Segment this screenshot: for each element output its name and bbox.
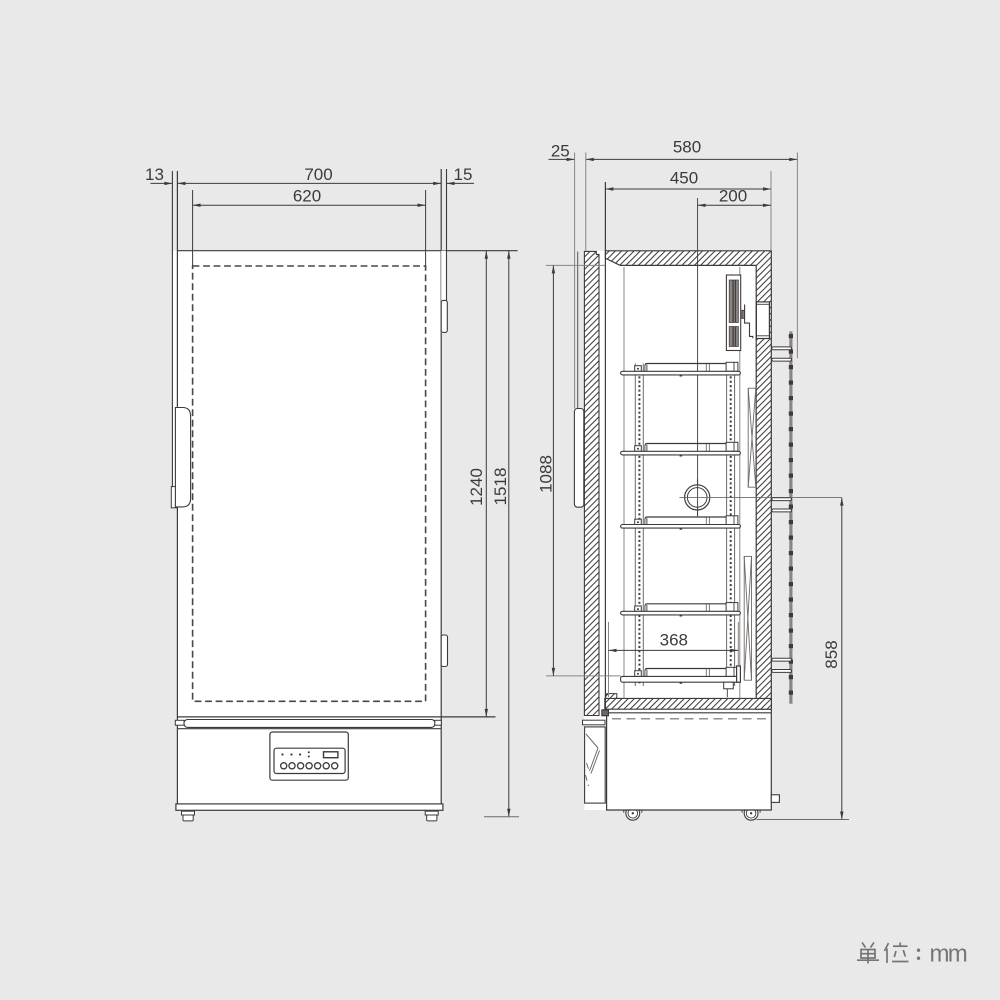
svg-text:1240: 1240 <box>467 468 486 506</box>
svg-text:200: 200 <box>719 187 747 206</box>
svg-text:580: 580 <box>673 138 701 157</box>
svg-text:450: 450 <box>670 169 698 188</box>
svg-text:mm: mm <box>930 941 967 968</box>
svg-text:1088: 1088 <box>537 455 556 493</box>
svg-text:1518: 1518 <box>491 468 510 506</box>
svg-text:368: 368 <box>660 631 688 650</box>
svg-text:620: 620 <box>293 187 321 206</box>
svg-text:700: 700 <box>304 165 332 184</box>
svg-text:13: 13 <box>145 165 164 184</box>
svg-text:858: 858 <box>822 640 841 668</box>
svg-text:15: 15 <box>454 165 473 184</box>
svg-text:25: 25 <box>551 142 570 161</box>
